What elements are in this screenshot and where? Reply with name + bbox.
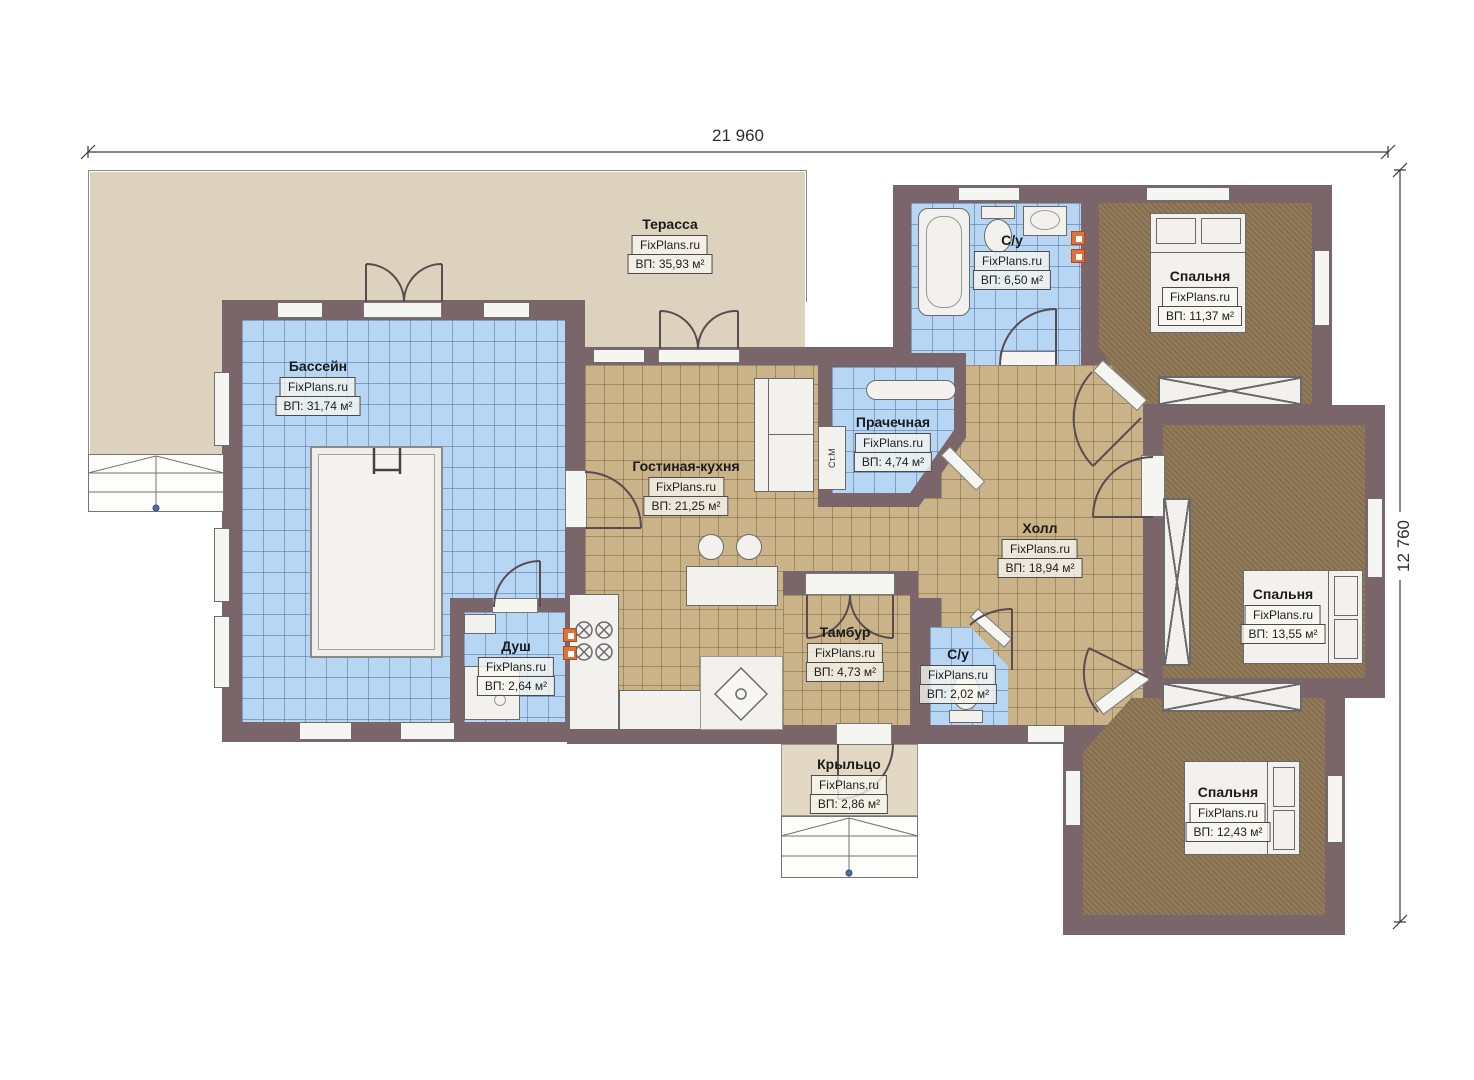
room-label-pool: Бассейн FixPlans.ru ВП: 31,74 м² bbox=[276, 358, 361, 416]
room-label-bedroom3: Спальня FixPlans.ru ВП: 12,43 м² bbox=[1186, 784, 1271, 842]
window bbox=[299, 722, 352, 740]
terrace-edge bbox=[88, 170, 807, 171]
brand-watermark: FixPlans.ru bbox=[478, 657, 554, 677]
pool-basin-inner bbox=[318, 454, 435, 650]
room-area: ВП: 35,93 м² bbox=[628, 254, 713, 274]
sink bbox=[464, 614, 496, 634]
room-name: Гостиная-кухня bbox=[632, 458, 739, 474]
window bbox=[958, 187, 1020, 201]
bar-stool bbox=[698, 534, 724, 560]
vent-marker-icon bbox=[563, 646, 577, 660]
bed-blanket-line bbox=[1151, 252, 1245, 253]
brand-watermark: FixPlans.ru bbox=[280, 377, 356, 397]
room-area: ВП: 18,94 м² bbox=[998, 558, 1083, 578]
bed-blanket-line bbox=[1328, 571, 1329, 663]
room-area: ВП: 2,64 м² bbox=[477, 676, 555, 696]
doorway-porch-entrance bbox=[836, 723, 892, 745]
window bbox=[1146, 187, 1230, 201]
bed-pillow bbox=[1273, 810, 1295, 850]
room-area: ВП: 21,25 м² bbox=[644, 496, 729, 516]
room-area: ВП: 12,43 м² bbox=[1186, 822, 1271, 842]
dimension-right: 12 760 bbox=[1394, 512, 1414, 580]
bed-pillow bbox=[1334, 619, 1358, 659]
room-label-bedroom2: Спальня FixPlans.ru ВП: 13,55 м² bbox=[1241, 586, 1326, 644]
wardrobe bbox=[1162, 682, 1302, 712]
room-label-vestibule: Тамбур FixPlans.ru ВП: 4,73 м² bbox=[806, 624, 884, 682]
sink-basin bbox=[1030, 210, 1060, 230]
room-label-bathroom1: С/у FixPlans.ru ВП: 6,50 м² bbox=[973, 232, 1051, 290]
window bbox=[1367, 498, 1383, 578]
room-name: Тамбур bbox=[806, 624, 884, 640]
terrace-floor bbox=[585, 302, 805, 348]
bed-pillow bbox=[1273, 767, 1295, 807]
bed-pillow bbox=[1156, 218, 1196, 244]
terrace-edge bbox=[88, 170, 89, 455]
room-label-wc2: С/у FixPlans.ru ВП: 2,02 м² bbox=[919, 646, 997, 704]
brand-watermark: FixPlans.ru bbox=[855, 433, 931, 453]
doorway-bedroom2 bbox=[1141, 455, 1165, 517]
window bbox=[1327, 775, 1343, 843]
brand-watermark: FixPlans.ru bbox=[648, 477, 724, 497]
window bbox=[400, 722, 455, 740]
room-label-living: Гостиная-кухня FixPlans.ru ВП: 21,25 м² bbox=[632, 458, 739, 516]
room-label-bedroom1: Спальня FixPlans.ru ВП: 11,37 м² bbox=[1158, 268, 1242, 326]
window bbox=[277, 302, 323, 318]
room-area: ВП: 2,86 м² bbox=[810, 794, 888, 814]
doorway-bathroom1 bbox=[1000, 351, 1056, 366]
brand-watermark: FixPlans.ru bbox=[1002, 539, 1078, 559]
wardrobe bbox=[1163, 498, 1191, 666]
hall-living-opening bbox=[918, 498, 948, 598]
room-label-hall: Холл FixPlans.ru ВП: 18,94 м² bbox=[998, 520, 1083, 578]
room-area: ВП: 4,74 м² bbox=[854, 452, 932, 472]
sofa-cushion-line bbox=[769, 434, 813, 435]
room-area: ВП: 2,02 м² bbox=[919, 684, 997, 704]
room-name: С/у bbox=[919, 646, 997, 662]
brand-watermark: FixPlans.ru bbox=[1190, 803, 1266, 823]
terrace-edge bbox=[806, 170, 807, 302]
dimension-top: 21 960 bbox=[704, 126, 772, 146]
room-label-terrace: Терасса FixPlans.ru ВП: 35,93 м² bbox=[628, 216, 713, 274]
room-name: Спальня bbox=[1158, 268, 1242, 284]
sofa bbox=[754, 378, 814, 492]
brand-watermark: FixPlans.ru bbox=[632, 235, 708, 255]
room-area: ВП: 31,74 м² bbox=[276, 396, 361, 416]
bar-stool bbox=[736, 534, 762, 560]
terrace-floor bbox=[90, 172, 222, 454]
brand-watermark: FixPlans.ru bbox=[811, 775, 887, 795]
room-name: Спальня bbox=[1241, 586, 1326, 602]
room-name: Бассейн bbox=[276, 358, 361, 374]
room-name: Крыльцо bbox=[810, 756, 888, 772]
doorway-shower bbox=[492, 598, 538, 613]
window bbox=[1314, 250, 1330, 326]
room-area: ВП: 11,37 м² bbox=[1158, 306, 1242, 326]
washing-machine: Ст.М bbox=[818, 426, 846, 490]
room-area: ВП: 6,50 м² bbox=[973, 270, 1051, 290]
kitchen-counter-corner bbox=[700, 656, 783, 730]
doorway-vestibule bbox=[805, 573, 895, 595]
bed-pillow bbox=[1201, 218, 1241, 244]
bar-island bbox=[686, 566, 778, 606]
brand-watermark: FixPlans.ru bbox=[1162, 287, 1238, 307]
window bbox=[1027, 725, 1065, 743]
brand-watermark: FixPlans.ru bbox=[920, 665, 996, 685]
window bbox=[214, 528, 230, 602]
bed-pillow bbox=[1334, 576, 1358, 616]
bathtub-inner bbox=[926, 216, 962, 308]
window bbox=[214, 616, 230, 688]
sofa-cushion-line bbox=[768, 379, 769, 491]
room-name: Душ bbox=[477, 638, 555, 654]
washing-machine-label: Ст.М bbox=[819, 427, 845, 489]
window bbox=[214, 372, 230, 446]
porch-steps bbox=[781, 816, 918, 878]
window bbox=[1065, 770, 1081, 826]
window bbox=[593, 349, 645, 363]
room-label-porch: Крыльцо FixPlans.ru ВП: 2,86 м² bbox=[810, 756, 888, 814]
terrace-steps bbox=[88, 454, 224, 512]
window bbox=[483, 302, 530, 318]
room-name: Терасса bbox=[628, 216, 713, 232]
room-area: ВП: 13,55 м² bbox=[1241, 624, 1326, 644]
vent-marker-icon bbox=[1071, 249, 1085, 263]
floor-plan: 21 960 12 760 bbox=[0, 0, 1474, 1080]
room-name: Спальня bbox=[1186, 784, 1271, 800]
wardrobe bbox=[1158, 376, 1302, 406]
room-area: ВП: 4,73 м² bbox=[806, 662, 884, 682]
brand-watermark: FixPlans.ru bbox=[1245, 605, 1321, 625]
ironing-board bbox=[866, 380, 956, 400]
vent-marker-icon bbox=[1071, 231, 1085, 245]
room-label-shower: Душ FixPlans.ru ВП: 2,64 м² bbox=[477, 638, 555, 696]
toilet-tank bbox=[981, 206, 1015, 219]
room-name: С/у bbox=[973, 232, 1051, 248]
doorway-living-terrace bbox=[658, 349, 740, 363]
vent-marker-icon bbox=[563, 628, 577, 642]
brand-watermark: FixPlans.ru bbox=[807, 643, 883, 663]
doorway-pool-terrace bbox=[363, 302, 442, 318]
room-name: Прачечная bbox=[854, 414, 932, 430]
toilet-tank bbox=[949, 710, 983, 723]
room-label-laundry: Прачечная FixPlans.ru ВП: 4,74 м² bbox=[854, 414, 932, 472]
doorway-pool-living bbox=[565, 470, 587, 528]
brand-watermark: FixPlans.ru bbox=[974, 251, 1050, 271]
kitchen-counter bbox=[569, 594, 619, 730]
room-name: Холл bbox=[998, 520, 1083, 536]
